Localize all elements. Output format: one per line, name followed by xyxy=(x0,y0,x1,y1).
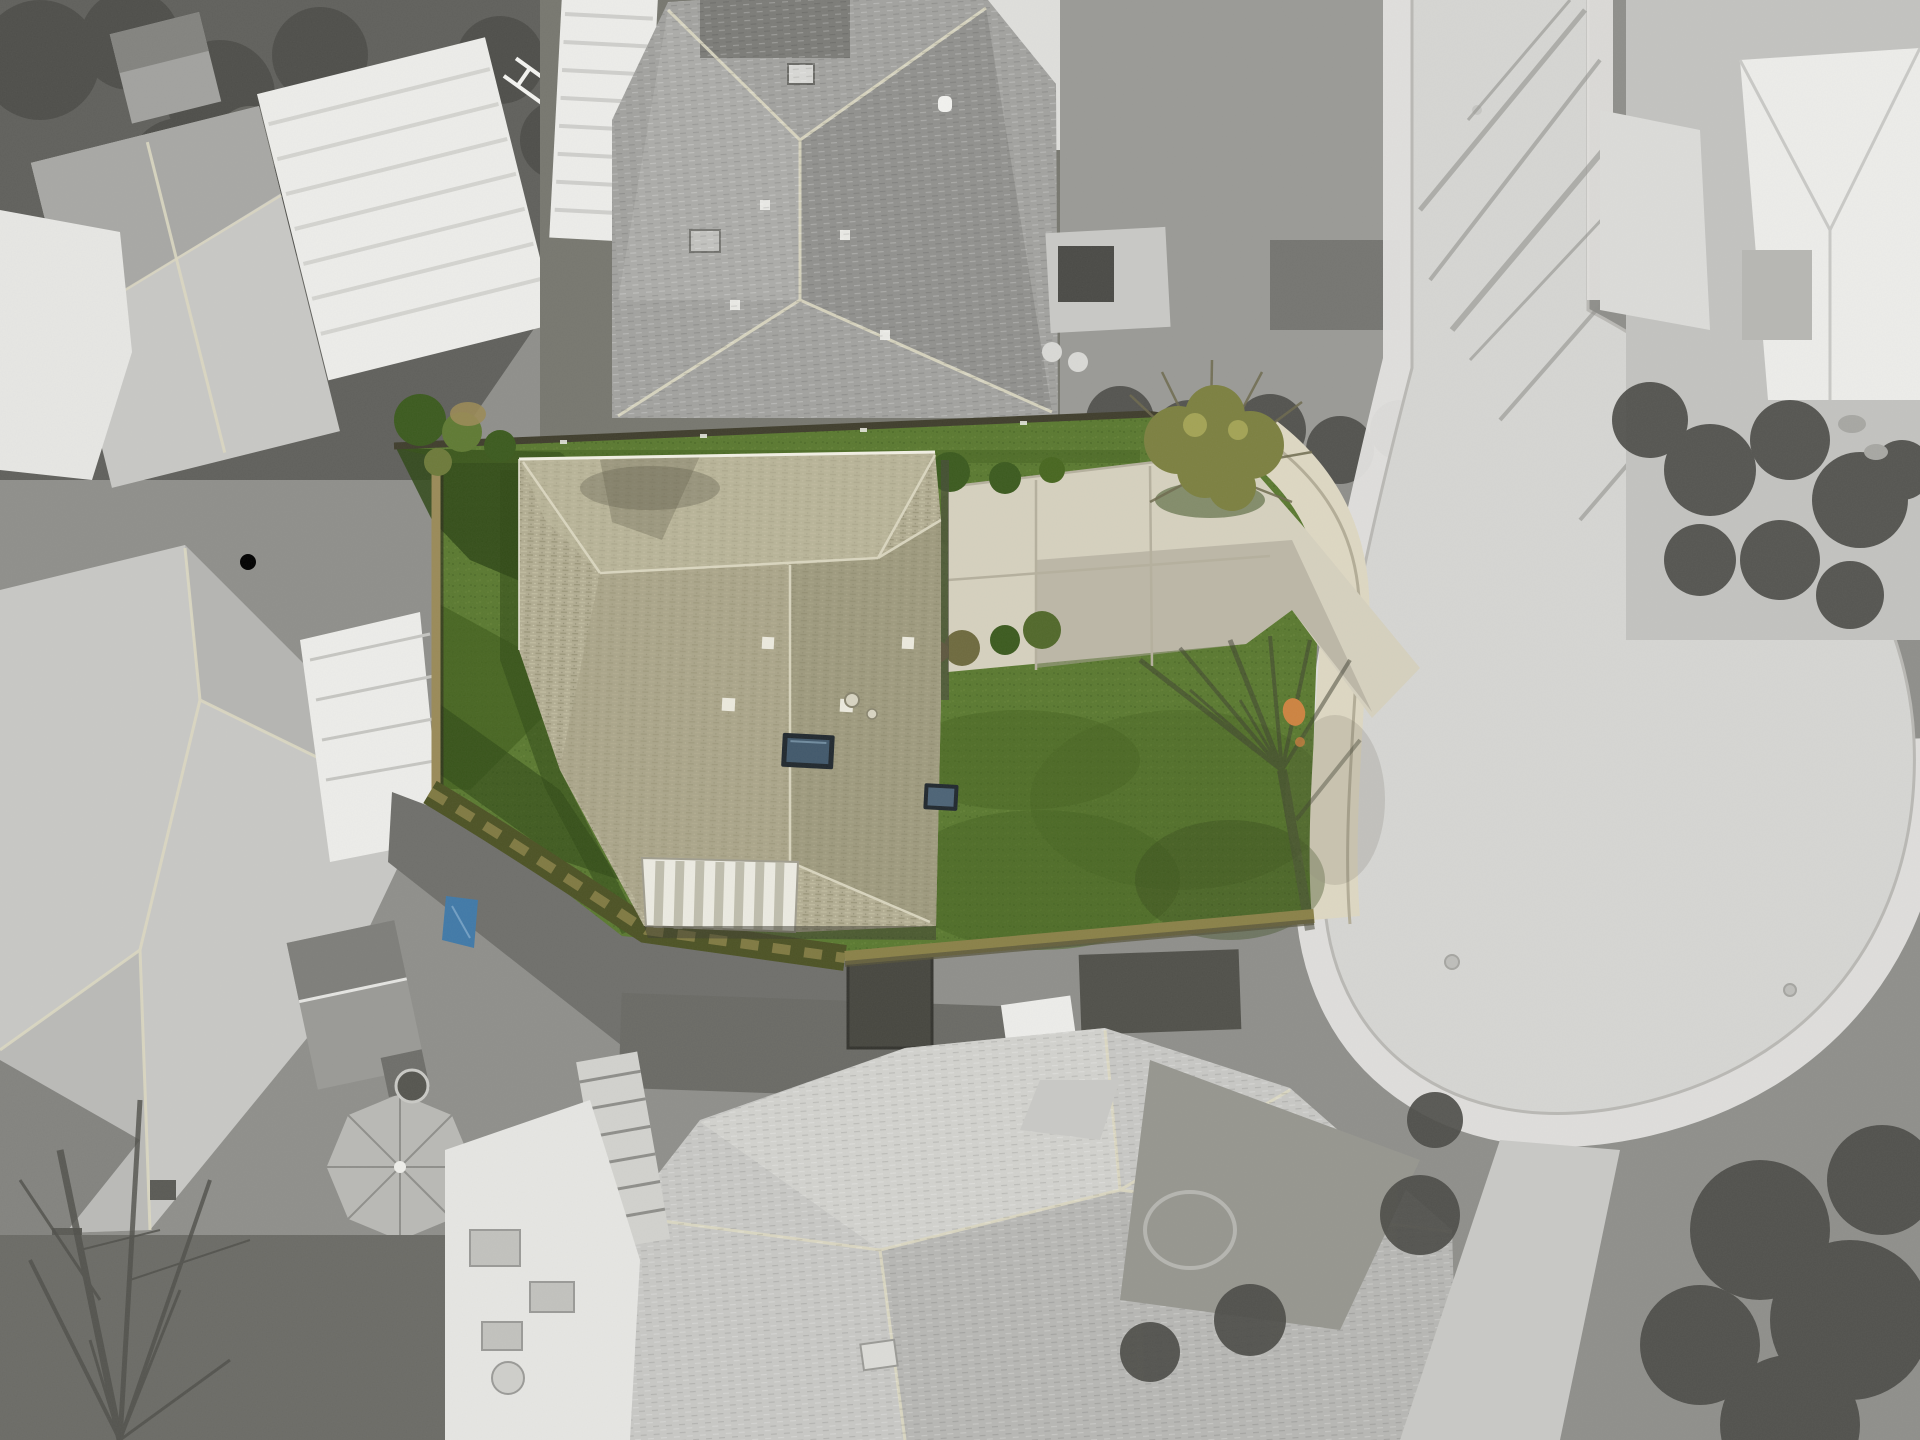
aerial-photo: Aerial drone photograph of a suburban cu… xyxy=(0,0,1920,1440)
aerial-photo-canvas: Aerial drone photograph of a suburban cu… xyxy=(0,0,1920,1440)
film-grain-overlay xyxy=(0,0,1920,1440)
